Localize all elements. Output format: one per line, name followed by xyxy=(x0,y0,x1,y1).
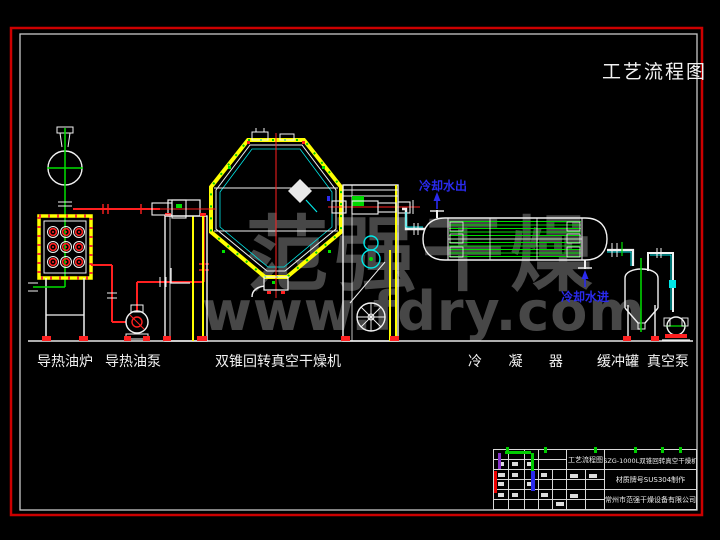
revision-mark-red xyxy=(494,471,497,493)
label-oil-furnace: 导热油炉 xyxy=(37,351,93,371)
sheet-border xyxy=(11,28,702,515)
oil-pump xyxy=(124,305,150,341)
label-double-cone-dryer: 双锥回转真空干燥机 xyxy=(215,351,341,371)
label-vacuum-pump: 真空泵 xyxy=(647,351,689,371)
furnace-coil-tubes xyxy=(48,227,85,268)
hot-oil-piping xyxy=(73,204,209,322)
annotation-cooling-water-out: 冷却水出 xyxy=(419,177,467,194)
cad-process-flow-screenshot: 范强干燥 www.fdry.com xyxy=(0,0,720,540)
condenser-outlet-pipe xyxy=(607,242,633,266)
condenser-vessel xyxy=(423,210,607,269)
annotation-cooling-water-in: 冷却水进 xyxy=(561,288,609,305)
oil-furnace xyxy=(28,127,91,341)
drawing-title: 工艺流程图 xyxy=(602,57,707,84)
top-tick xyxy=(544,447,547,453)
titleblock-company: 常州市范强干燥设备有限公司 xyxy=(605,490,696,509)
label-buffer-tank: 缓冲罐 xyxy=(597,351,639,371)
revision-mark-blue xyxy=(531,471,535,491)
label-oil-pump: 导热油泵 xyxy=(105,351,161,371)
top-tick xyxy=(506,447,509,453)
cooling-water-in-arrow xyxy=(582,270,589,287)
titleblock-material: 材质牌号SUS304制作 xyxy=(605,470,696,489)
cooling-water-out-arrow xyxy=(434,192,441,209)
double-cone-vessel xyxy=(150,128,420,298)
titleblock-model: SZG-1000L双锥回转真空干燥机 xyxy=(605,450,696,469)
revision-mark-green-v xyxy=(531,453,534,471)
label-condenser: 冷 凝 器 xyxy=(468,351,574,371)
titleblock-drawing-name: 工艺流程图 xyxy=(567,450,604,469)
vacuum-pump-body xyxy=(662,317,690,340)
revision-mark-purple xyxy=(498,453,501,469)
title-block: 工艺流程图 SZG-1000L双锥回转真空干燥机 材质牌号SUS304制作 常州… xyxy=(493,449,697,510)
